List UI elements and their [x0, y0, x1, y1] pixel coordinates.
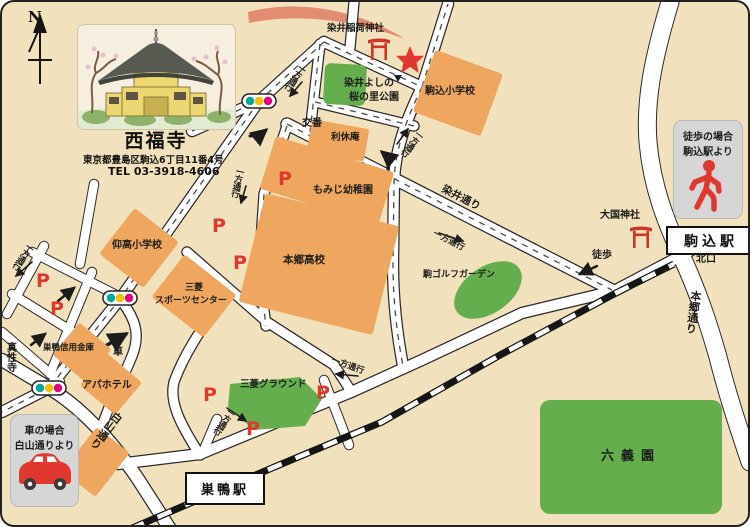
walking-person-icon	[682, 158, 734, 212]
traffic-light-icon	[32, 381, 66, 395]
rikugien-area: 六義園	[540, 400, 722, 514]
north-label: N	[28, 8, 42, 26]
mitsubishi-sports-label: 三菱	[185, 283, 203, 293]
torii-icon	[630, 227, 652, 249]
parking-marker: P	[212, 215, 226, 237]
temple-name: 西福寺	[96, 126, 216, 153]
temple-tel: TEL 03-3918-4606	[108, 165, 220, 178]
daikoku-shrine-label: 大国神社	[600, 210, 640, 222]
walk-guide-line1: 徒歩の場合	[674, 128, 742, 143]
sakura-park-label: 桜の里公園	[349, 92, 399, 104]
rikyu-an-label: 利休庵	[331, 133, 360, 144]
car-guide-box: 車の場合 白山通りより	[10, 414, 79, 507]
destination-star-icon	[396, 46, 424, 73]
car-guide-line1: 車の場合	[11, 422, 78, 437]
walk-label: 徒歩	[592, 250, 612, 262]
komagome-station-box: 駒込駅	[666, 226, 750, 255]
hongo-highschool-label: 本郷高校	[283, 254, 325, 266]
sakura-park-label: 染井よしの	[344, 78, 394, 90]
sugamo-shinkin-label: 巣鴨信用金庫	[43, 344, 94, 354]
parking-marker: P	[50, 298, 64, 320]
walk-guide-line2: 駒込駅より	[674, 143, 742, 158]
apa-hotel-label: アパホテル	[82, 380, 132, 392]
mitsubishi-ground-label: 三菱グラウンド	[240, 380, 307, 391]
temple-address: 東京都豊島区駒込6丁目11番4号	[83, 152, 223, 166]
access-map: 六義園 N 西福寺 東京都豊島区駒込6丁目11番4号 TEL 03-3918-4…	[0, 0, 750, 527]
walk-guide-box: 徒歩の場合 駒込駅より	[673, 120, 743, 219]
komagome-station-label: 駒込駅	[684, 231, 738, 251]
koma-golf-garden-label: 駒ゴルフガーデン	[423, 270, 495, 280]
north-arrow-icon	[28, 16, 52, 84]
shinsho-ji-label: 真性寺	[4, 342, 16, 372]
police-box-label: 交番	[302, 118, 322, 130]
momiji-kindergarten-label: もみじ幼稚園	[313, 185, 373, 197]
north-exit-label: 北口	[696, 254, 716, 266]
oneway-arrow-icon	[241, 186, 246, 203]
temple-illustration	[78, 25, 235, 129]
car-guide-line2: 白山通りより	[11, 437, 78, 452]
komagome-elementary-label: 駒込小学校	[425, 86, 475, 98]
car-icon	[15, 452, 75, 494]
parking-marker: P	[36, 270, 50, 292]
traffic-light-icon	[242, 94, 276, 108]
parking-marker: P	[316, 382, 330, 404]
turn-arrow-icon	[250, 130, 266, 136]
temple-photo	[77, 24, 236, 130]
traffic-light-icon	[103, 291, 137, 305]
mitsubishi-sports-label: スポーツセンター	[155, 296, 227, 306]
car-label: 車	[113, 347, 123, 359]
parking-marker: P	[278, 168, 292, 190]
parking-marker: P	[203, 384, 217, 406]
parking-marker: P	[246, 418, 260, 440]
parking-marker: P	[233, 252, 247, 274]
sugamo-station-label: 巣鴨駅	[201, 479, 249, 498]
gyoko-elementary-label: 仰高小学校	[112, 240, 162, 252]
torii-icon	[368, 39, 390, 61]
somei-inari-shrine-label: 染井稲荷神社	[327, 24, 384, 35]
sugamo-station-box: 巣鴨駅	[185, 472, 265, 505]
rikugien-label: 六義園	[601, 450, 661, 465]
